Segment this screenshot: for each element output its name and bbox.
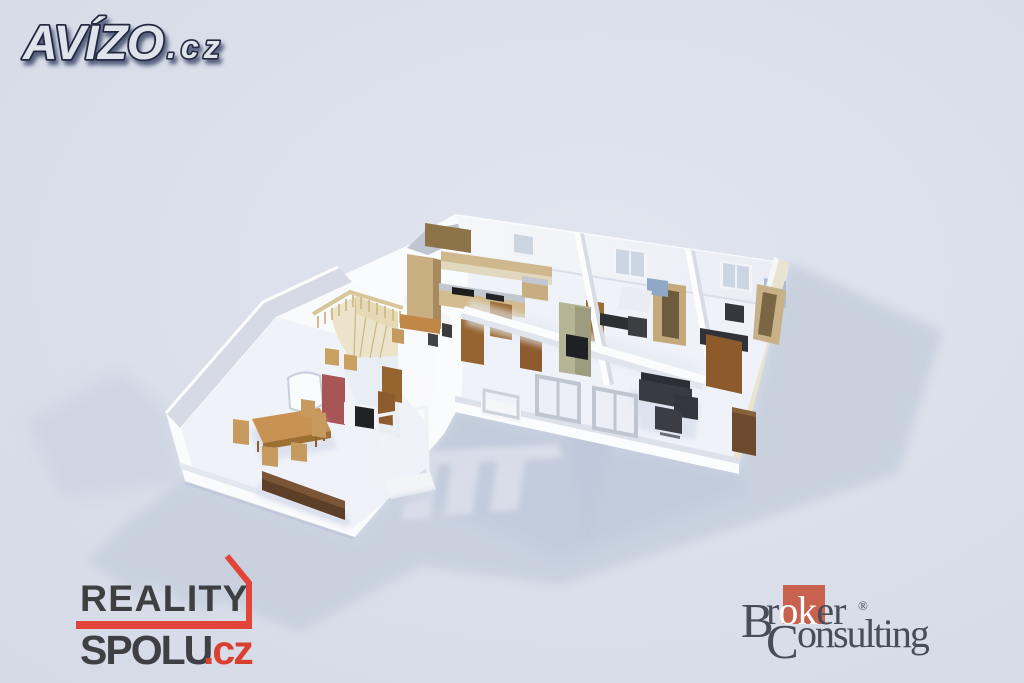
svg-text:REALITY: REALITY — [80, 577, 249, 619]
svg-text:C: C — [766, 614, 799, 669]
svg-text:AVÍZO: AVÍZO — [22, 16, 164, 70]
svg-text:.cz: .cz — [167, 29, 225, 65]
svg-text:onsulting: onsulting — [797, 611, 930, 656]
svg-text:SPOLU: SPOLU — [80, 627, 212, 673]
svg-text:.cz: .cz — [203, 627, 253, 673]
